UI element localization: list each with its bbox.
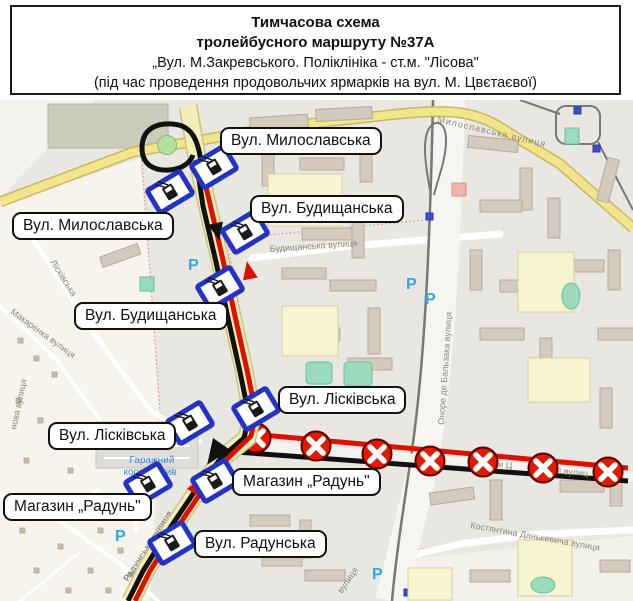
parking-icon: P <box>115 528 126 545</box>
route-map: Милославська вулиця Будищанська вулиця Л… <box>0 100 633 601</box>
closed-stop-marker <box>416 447 445 476</box>
stop-label-myloslavska-right: Вул. Милославська <box>220 127 382 155</box>
pink-building <box>452 183 466 196</box>
parking-icon: P <box>372 566 383 583</box>
parking-icon: P <box>406 276 417 293</box>
stop-label-radun-shop-right: Магазин „Радунь" <box>232 468 381 496</box>
closed-stop-marker <box>469 448 498 477</box>
turning-loop-island <box>158 136 177 155</box>
closed-stop-marker <box>529 454 558 483</box>
parking-icon: P <box>425 291 436 308</box>
stop-label-liskivska-left: Вул. Лісківська <box>48 422 176 450</box>
closed-stop-marker <box>363 440 392 469</box>
stop-label-liskivska-right: Вул. Лісківська <box>278 386 406 414</box>
closed-stop-marker <box>302 432 331 461</box>
stop-label-myloslavska-left: Вул. Милославська <box>12 212 174 240</box>
header-subtitle-note: (під час проведення продовольчих ярмаркі… <box>12 73 619 93</box>
header-title-line2: тролейбусного маршруту №37А <box>12 33 619 53</box>
stop-label-radunska: Вул. Радунська <box>194 530 327 558</box>
stop-label-radun-shop-left: Магазин „Радунь" <box>3 493 152 521</box>
map-canvas: Милославська вулиця Будищанська вулиця Л… <box>0 100 633 601</box>
stop-label-budyschanska-right: Вул. Будищанська <box>250 195 404 223</box>
closed-stop-marker <box>594 458 623 487</box>
header-title-line1: Тимчасова схема <box>12 13 619 33</box>
parking-icon: P <box>188 257 199 274</box>
header-subtitle-route: „Вул. М.Закревського. Поліклініка - ст.м… <box>12 53 619 73</box>
stop-label-budyschanska-left: Вул. Будищанська <box>74 302 228 330</box>
header-box: Тимчасова схема тролейбусного маршруту №… <box>10 5 621 95</box>
